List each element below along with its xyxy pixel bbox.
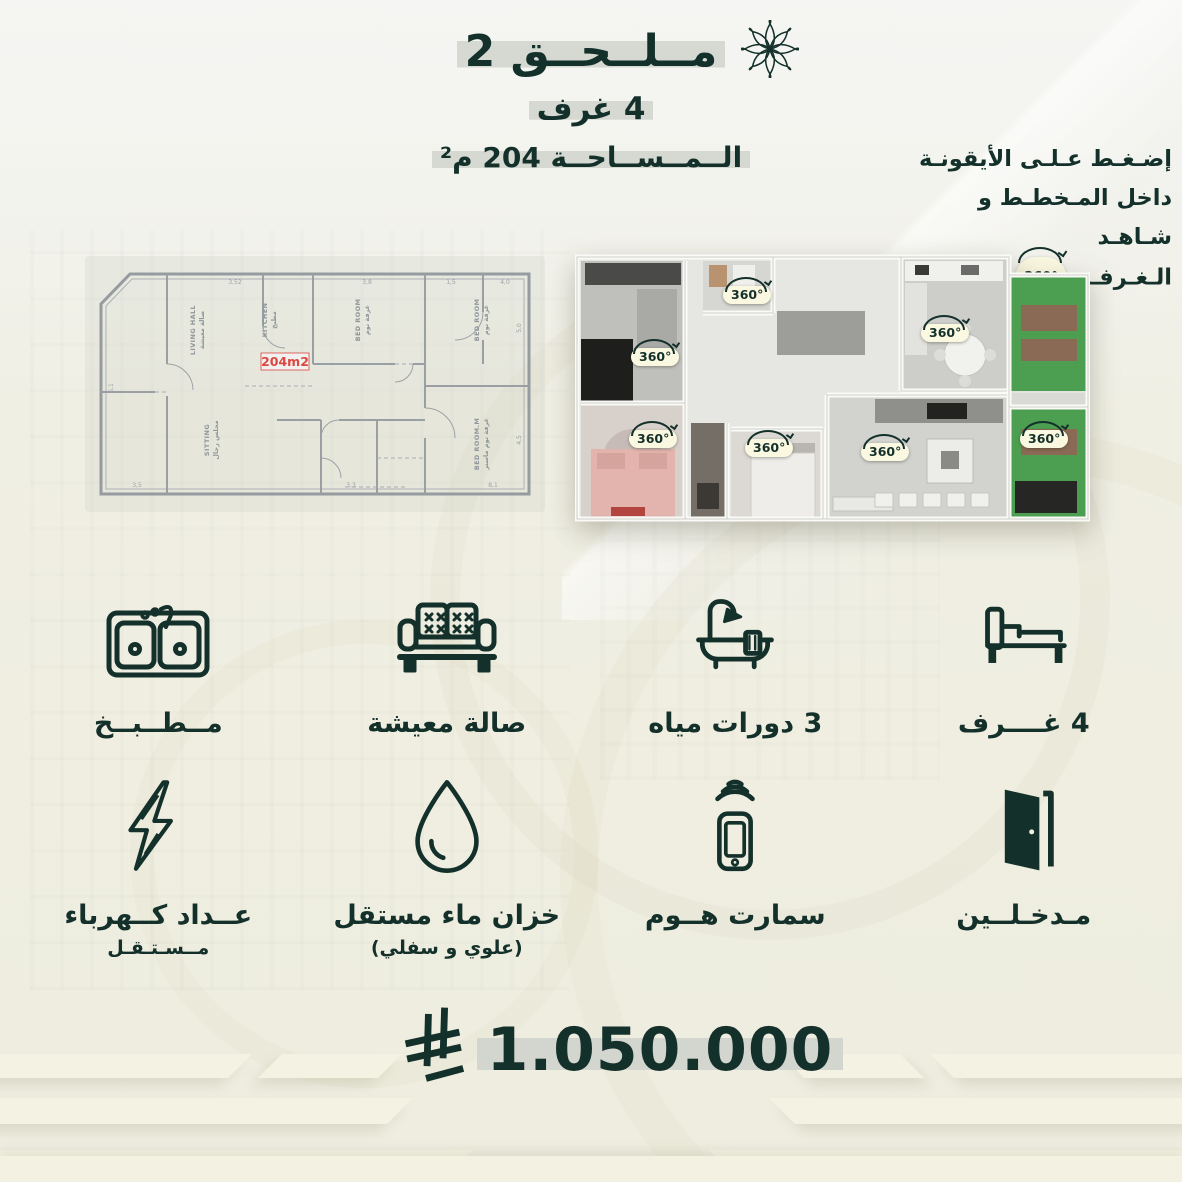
blueprint-backdrop [85, 256, 545, 512]
feature-electricity-meter: عــداد كــهرباء مــسـتـقـل [14, 778, 303, 959]
feature-label: 3 دورات مياه [648, 708, 822, 739]
feature-label: 4 غــــرف [958, 708, 1090, 739]
sofa-icon [392, 586, 502, 686]
feature-label: خزان ماء مستقل [333, 900, 560, 931]
kitchen-sink-icon [103, 586, 213, 686]
flower-mandala-icon [741, 20, 799, 78]
feature-entrances: مـدخـلــين [880, 778, 1169, 959]
flyer-canvas: مــلــحــق 2 [0, 0, 1182, 1182]
instruction-line2: داخل المـخطـط و شـاهـد [902, 179, 1172, 257]
feature-label: صالة معيشة [367, 708, 526, 739]
electricity-icon [112, 778, 204, 878]
instruction-line1: إضـغـط عـلـى الأيقونـة [902, 140, 1172, 179]
badge-360-majlis[interactable]: 360° [861, 443, 909, 461]
area-line: الــمــســاحــة 204 م² [432, 141, 750, 174]
bathtub-icon [687, 586, 783, 686]
feature-kitchen: مــطــبــخ [14, 586, 303, 739]
page-title: مــلــحــق 2 [457, 26, 726, 77]
feature-sublabel: (علوي و سفلي) [371, 937, 523, 959]
feature-sublabel: مــسـتـقـل [107, 937, 209, 959]
badge-360-bedroom2[interactable]: 360° [745, 439, 793, 457]
rooms-subtitle: 4 غرف [529, 91, 654, 127]
architectural-floor-plan: LIVING HALL صالة معيشة KITCHEN مطبخ BED … [95, 266, 535, 502]
features-row-2: مـدخـلــين سمارت هــوم [14, 778, 1168, 959]
render-3d-floor-plan[interactable]: 360° 360° 360° 360° 360° 360° 360° [575, 252, 1090, 524]
water-drop-icon [401, 778, 493, 878]
feature-label: عــداد كــهرباء [64, 900, 252, 931]
badge-360-bedroom1[interactable]: 360° [629, 430, 677, 448]
bottom-strip-deco [0, 1156, 1182, 1182]
features-row-1: 4 غــــرف 3 دورات مياه [14, 586, 1168, 739]
feature-label: سمارت هــوم [645, 900, 826, 931]
feature-label: مــطــبــخ [94, 708, 223, 739]
badge-360-bath[interactable]: 360° [723, 286, 771, 304]
feature-living-room: صالة معيشة [303, 586, 592, 739]
smart-home-icon [689, 778, 781, 878]
price-block: 1.050.000 [0, 1002, 1182, 1098]
badge-360-kitchen[interactable]: 360° [921, 324, 969, 342]
open-door-icon [976, 778, 1072, 878]
render-3d-drawing [575, 252, 1090, 524]
feature-water-tank: خزان ماء مستقل (علوي و سفلي) [303, 778, 592, 959]
saudi-riyal-icon [397, 1002, 467, 1098]
feature-smart-home: سمارت هــوم [591, 778, 880, 959]
price-amount: 1.050.000 [477, 1015, 844, 1085]
bed-icon [976, 586, 1072, 686]
feature-bathrooms: 3 دورات مياه [591, 586, 880, 739]
badge-360-terrace[interactable]: 360° [1020, 430, 1068, 448]
feature-label: مـدخـلــين [956, 900, 1091, 931]
feature-rooms: 4 غــــرف [880, 586, 1169, 739]
badge-360-utility[interactable]: 360° [631, 348, 679, 366]
